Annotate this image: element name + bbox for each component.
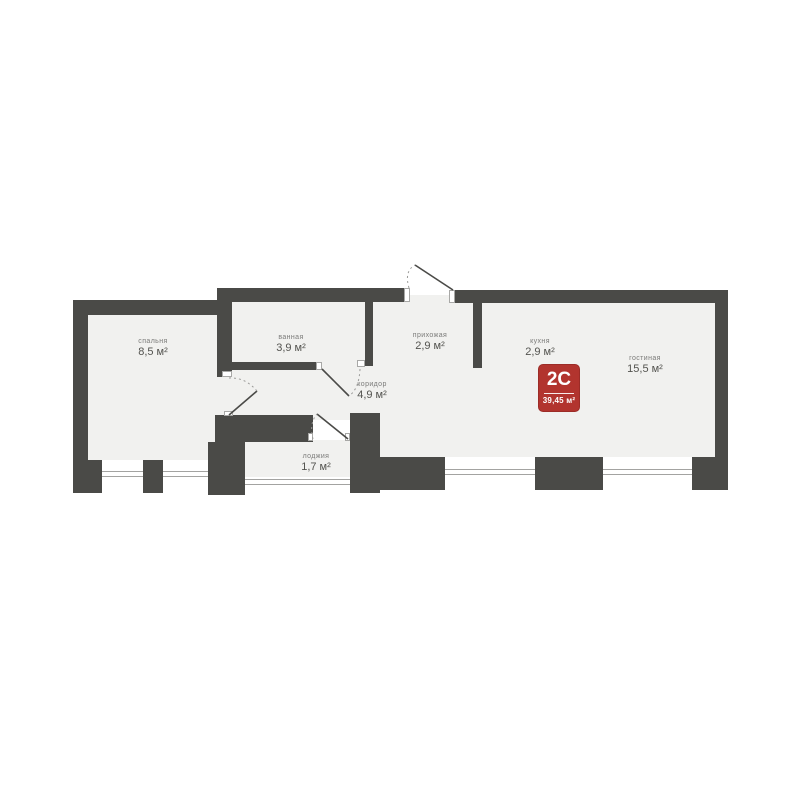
room-name: прихожая [413, 332, 447, 339]
bathroom-door-jamb-right [357, 360, 365, 367]
bedroom-window-1 [102, 460, 143, 493]
window-glazing [445, 469, 535, 475]
living-window-1 [445, 457, 535, 488]
wall-living-bottom-left [380, 457, 445, 490]
room-label-hallway: прихожая 2,9 м² [413, 332, 447, 352]
room-name: гостиная [627, 355, 663, 362]
window-glazing [603, 469, 692, 475]
wall-bathroom-hall-top [217, 288, 408, 302]
entrance-door-leaf [415, 265, 453, 290]
apartment-type-label: 2С [539, 367, 579, 392]
room-label-loggia: лоджия 1,7 м² [301, 453, 331, 473]
wall-hallway-kitchen-stub [473, 303, 482, 368]
wall-bathroom-right [365, 302, 373, 366]
room-area: 2,9 м² [525, 346, 555, 358]
room-label-living-room: гостиная 15,5 м² [627, 355, 663, 375]
wall-bedroom-bottom-left-pier [73, 460, 102, 493]
living-window-2 [603, 457, 692, 488]
wall-bathroom-bottom [228, 362, 322, 370]
apartment-total-area: 39,45 м² [539, 394, 579, 407]
window-glazing [245, 479, 350, 485]
loggia-glazing-band [245, 477, 350, 495]
room-area: 8,5 м² [138, 346, 168, 358]
loggia-door-jamb-right [345, 433, 350, 441]
room-name: кухня [525, 338, 555, 345]
room-name: ванная [276, 334, 306, 341]
room-label-bedroom: спальня 8,5 м² [138, 338, 168, 358]
room-area: 15,5 м² [627, 363, 663, 375]
room-area: 3,9 м² [276, 342, 306, 354]
room-area: 1,7 м² [301, 461, 331, 473]
wall-bedroom-window-mullion [143, 460, 163, 493]
entrance-jamb-left [404, 288, 410, 302]
apartment-type-badge: 2С 39,45 м² [538, 364, 580, 412]
room-name: лоджия [301, 453, 331, 460]
bedroom-door-jamb-bottom [224, 411, 233, 416]
room-name: коридор [357, 381, 387, 388]
bedroom-window-2 [163, 460, 208, 493]
wall-living-top [450, 290, 728, 303]
room-area: 4,9 м² [357, 389, 387, 401]
wall-living-bottom-middle [535, 457, 603, 490]
wall-bedroom-bottom-right-pier [208, 460, 245, 493]
floor-bathroom [225, 295, 370, 370]
loggia-door-jamb-left [308, 433, 313, 441]
wall-bedroom-top [73, 300, 232, 315]
wall-living-bottom-right [692, 457, 728, 490]
floorplan-canvas: спальня 8,5 м² ванная 3,9 м² прихожая 2,… [0, 0, 800, 800]
room-name: спальня [138, 338, 168, 345]
room-label-kitchen: кухня 2,9 м² [525, 338, 555, 358]
floor-bedroom [80, 308, 225, 465]
window-glazing [163, 471, 208, 477]
bathroom-door-jamb [316, 362, 322, 370]
wall-loggia-right-pier [350, 413, 380, 493]
room-label-bathroom: ванная 3,9 м² [276, 334, 306, 354]
entrance-door-arc [407, 265, 415, 288]
bedroom-door-jamb-top [222, 371, 232, 377]
window-glazing [102, 471, 143, 477]
wall-loggia-top [215, 415, 313, 442]
entrance-jamb-right [449, 290, 455, 303]
room-label-corridor: коридор 4,9 м² [357, 381, 387, 401]
room-area: 2,9 м² [413, 340, 447, 352]
